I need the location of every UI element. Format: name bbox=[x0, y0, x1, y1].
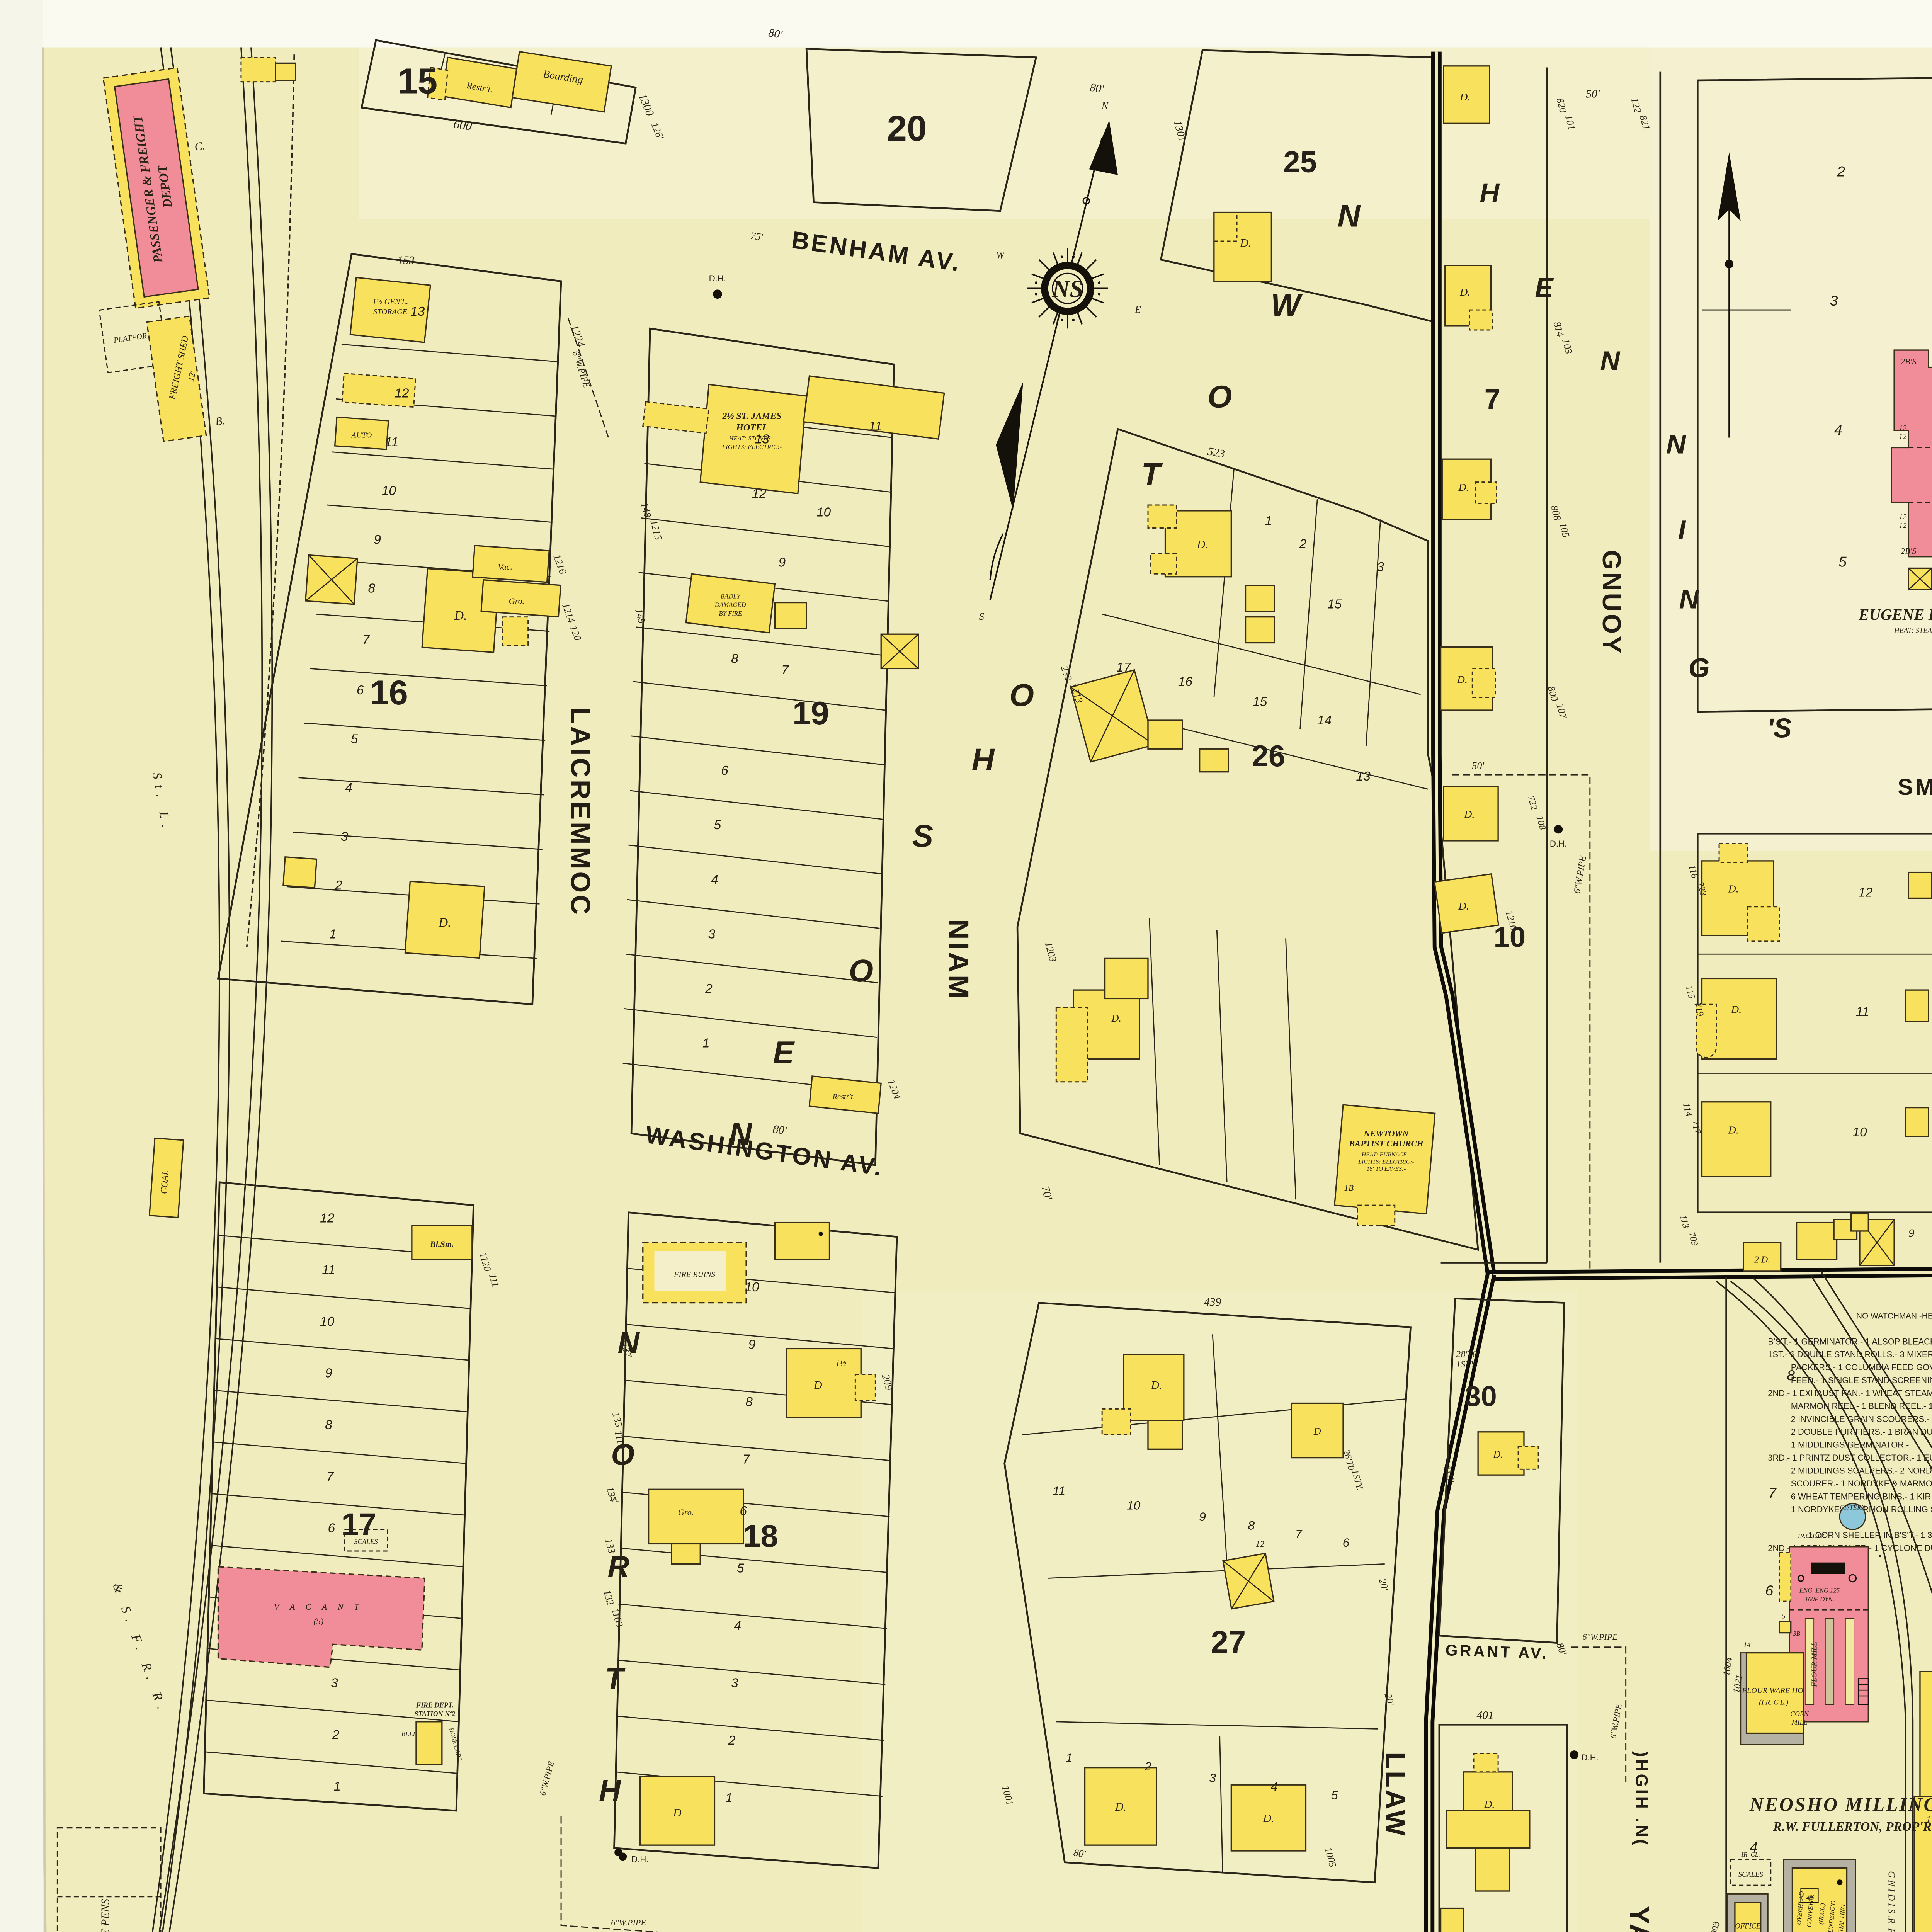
svg-text:T: T bbox=[1141, 457, 1163, 492]
svg-text:80': 80' bbox=[1073, 1847, 1087, 1860]
svg-text:16: 16 bbox=[370, 673, 408, 712]
svg-text:D.: D. bbox=[1484, 1799, 1495, 1811]
svg-text:2 MIDDLINGS SCALPERS.- 2 NORDY: 2 MIDDLINGS SCALPERS.- 2 NORDYKE SQUARE … bbox=[1791, 1466, 1932, 1475]
svg-text:17: 17 bbox=[1116, 660, 1131, 675]
svg-text:401: 401 bbox=[1476, 1709, 1494, 1721]
svg-text:10: 10 bbox=[382, 484, 396, 498]
svg-text:27: 27 bbox=[1211, 1625, 1246, 1660]
svg-text:6: 6 bbox=[1343, 1536, 1350, 1549]
svg-text:D: D bbox=[1313, 1426, 1321, 1437]
svg-text:C.: C. bbox=[194, 139, 206, 153]
svg-text:5: 5 bbox=[1782, 1612, 1786, 1620]
svg-text:D.H.: D.H. bbox=[709, 274, 726, 283]
svg-text:1: 1 bbox=[333, 1779, 341, 1794]
svg-text:FIRE DEPT.: FIRE DEPT. bbox=[416, 1701, 453, 1709]
svg-text:D.: D. bbox=[1111, 1013, 1121, 1024]
svg-text:2: 2 bbox=[705, 982, 713, 996]
svg-text:EUGENE FIELD SCHOOL: EUGENE FIELD SCHOOL bbox=[1858, 606, 1932, 623]
svg-text:COAL: COAL bbox=[159, 1170, 171, 1194]
svg-text:O: O bbox=[849, 953, 873, 988]
svg-text:OFFICE: OFFICE bbox=[1735, 1922, 1761, 1930]
svg-text:SCALES: SCALES bbox=[354, 1537, 378, 1545]
svg-text:2: 2 bbox=[335, 878, 342, 893]
svg-text:D.: D. bbox=[454, 609, 467, 623]
svg-text:7: 7 bbox=[1768, 1485, 1777, 1501]
svg-text:26: 26 bbox=[1252, 739, 1286, 773]
svg-text:12: 12 bbox=[1858, 886, 1873, 900]
svg-text:BELL: BELL bbox=[401, 1730, 417, 1738]
svg-text:S: S bbox=[979, 611, 984, 622]
svg-text:Gro.: Gro. bbox=[509, 596, 525, 606]
svg-text:6: 6 bbox=[328, 1521, 335, 1536]
svg-text:6: 6 bbox=[357, 683, 364, 697]
svg-text:1: 1 bbox=[1066, 1751, 1073, 1765]
svg-text:O: O bbox=[1009, 678, 1034, 713]
svg-text:CORN: CORN bbox=[1790, 1710, 1809, 1718]
svg-text:R.W. FULLERTON, PROP'R.: R.W. FULLERTON, PROP'R. bbox=[1773, 1820, 1932, 1834]
svg-text:18' TO EAVES:-: 18' TO EAVES:- bbox=[1367, 1166, 1406, 1172]
svg-text:HEAT: FURNACE:-: HEAT: FURNACE:- bbox=[1361, 1151, 1411, 1158]
svg-text:6: 6 bbox=[740, 1504, 747, 1518]
svg-text:D.: D. bbox=[1459, 91, 1470, 103]
svg-text:PACKERS.- 1 COLUMBIA FEED GOVE: PACKERS.- 1 COLUMBIA FEED GOVERNOR.- 1 D… bbox=[1791, 1362, 1932, 1372]
svg-text:1½ GEN'L.: 1½ GEN'L. bbox=[372, 298, 408, 306]
svg-text:80': 80' bbox=[768, 27, 784, 41]
svg-text:1: 1 bbox=[725, 1791, 733, 1805]
svg-text:D: D bbox=[813, 1379, 822, 1391]
svg-text:HOTEL: HOTEL bbox=[736, 422, 768, 433]
svg-text:YAWDAORB: YAWDAORB bbox=[1624, 1906, 1655, 1932]
svg-text:18: 18 bbox=[743, 1519, 778, 1554]
svg-text:I: I bbox=[1678, 515, 1686, 545]
svg-text:BAPTIST CHURCH: BAPTIST CHURCH bbox=[1349, 1139, 1423, 1148]
svg-text:D: D bbox=[673, 1807, 681, 1819]
svg-text:'S: 'S bbox=[1767, 713, 1792, 743]
svg-text:MARMON REEL.- 1 BLEND REEL.- 1: MARMON REEL.- 1 BLEND REEL.- 1 BARNARD &… bbox=[1791, 1401, 1932, 1411]
svg-text:5: 5 bbox=[714, 818, 721, 832]
svg-text:IR.CH.30': IR.CH.30' bbox=[1798, 1532, 1824, 1540]
svg-text:7: 7 bbox=[362, 633, 370, 647]
svg-text:2: 2 bbox=[332, 1728, 340, 1742]
svg-text:100P DYN.: 100P DYN. bbox=[1805, 1595, 1834, 1603]
svg-text:10: 10 bbox=[1852, 1125, 1867, 1139]
svg-text:D.: D. bbox=[1240, 237, 1251, 250]
svg-text:SMITH AV.: SMITH AV. bbox=[1898, 774, 1932, 800]
svg-text:15: 15 bbox=[398, 61, 437, 101]
svg-text:9: 9 bbox=[779, 556, 786, 570]
svg-text:D.: D. bbox=[1262, 1813, 1274, 1825]
svg-text:75': 75' bbox=[750, 230, 764, 243]
svg-text:D.: D. bbox=[1459, 286, 1470, 298]
svg-text:12: 12 bbox=[1899, 513, 1906, 521]
svg-text:G: G bbox=[1689, 653, 1710, 683]
svg-text:GRANT AV.: GRANT AV. bbox=[1445, 1641, 1549, 1662]
svg-text:D.H.: D.H. bbox=[1582, 1753, 1599, 1762]
svg-text:G N I D I S .R .R: G N I D I S .R .R bbox=[1886, 1871, 1896, 1932]
svg-text:SCALES: SCALES bbox=[1738, 1871, 1763, 1879]
svg-text:D.: D. bbox=[1728, 1124, 1739, 1136]
svg-text:3: 3 bbox=[731, 1676, 738, 1690]
svg-text:3: 3 bbox=[708, 927, 716, 941]
svg-text:D.H.: D.H. bbox=[1550, 839, 1567, 849]
svg-text:4: 4 bbox=[734, 1619, 742, 1633]
svg-text:600: 600 bbox=[452, 117, 473, 133]
svg-text:12: 12 bbox=[395, 386, 409, 401]
svg-text:GNUOY: GNUOY bbox=[1597, 550, 1626, 655]
svg-text:10: 10 bbox=[816, 505, 831, 520]
svg-text:2: 2 bbox=[1299, 537, 1307, 551]
svg-text:H: H bbox=[971, 742, 995, 777]
svg-text:8: 8 bbox=[325, 1418, 332, 1432]
svg-text:6: 6 bbox=[721, 764, 728, 778]
svg-text:N: N bbox=[1679, 583, 1700, 614]
svg-text:15: 15 bbox=[1253, 695, 1267, 709]
svg-text:CATTLE PENS: CATTLE PENS bbox=[99, 1899, 112, 1932]
svg-text:13: 13 bbox=[755, 432, 769, 446]
svg-text:12: 12 bbox=[1899, 424, 1906, 432]
svg-text:R: R bbox=[607, 1549, 629, 1583]
svg-text:5: 5 bbox=[1838, 554, 1847, 570]
svg-text:W: W bbox=[996, 249, 1005, 260]
svg-text:5: 5 bbox=[351, 732, 358, 746]
svg-text:NEWTOWN: NEWTOWN bbox=[1364, 1129, 1409, 1138]
svg-text:NS: NS bbox=[1052, 276, 1083, 303]
svg-text:D.: D. bbox=[1197, 538, 1208, 551]
svg-text:12': 12' bbox=[186, 369, 197, 382]
svg-text:V A C A N T: V A C A N T bbox=[274, 1602, 363, 1612]
svg-text:9: 9 bbox=[374, 532, 381, 547]
svg-text:Restr't.: Restr't. bbox=[832, 1092, 855, 1101]
svg-text:Bl.Sm.: Bl.Sm. bbox=[430, 1239, 454, 1249]
svg-text:AUTO: AUTO bbox=[350, 431, 372, 440]
svg-text:11: 11 bbox=[385, 435, 399, 449]
svg-text:N: N bbox=[1666, 429, 1687, 459]
svg-text:1 MIDDLINGS GERMINATOR.-: 1 MIDDLINGS GERMINATOR.- bbox=[1791, 1440, 1909, 1450]
svg-text:N: N bbox=[1600, 345, 1621, 376]
svg-text:Gro.: Gro. bbox=[678, 1507, 694, 1517]
svg-text:12: 12 bbox=[320, 1211, 335, 1226]
svg-text:11: 11 bbox=[869, 419, 882, 434]
svg-text:3RD.- 1 PRINTZ DUST COLLECTOR.: 3RD.- 1 PRINTZ DUST COLLECTOR.- 1 EUREKA… bbox=[1768, 1453, 1932, 1463]
svg-text:LLAW: LLAW bbox=[1380, 1752, 1411, 1838]
svg-text:8: 8 bbox=[1787, 1367, 1795, 1383]
svg-text:10: 10 bbox=[1127, 1498, 1141, 1512]
svg-text:4: 4 bbox=[1271, 1779, 1278, 1793]
svg-text:(I R. C L.): (I R. C L.) bbox=[1759, 1698, 1788, 1706]
svg-text:3: 3 bbox=[1209, 1771, 1216, 1785]
svg-text:N: N bbox=[729, 1117, 753, 1152]
svg-text:16: 16 bbox=[1178, 675, 1193, 689]
svg-text:1: 1 bbox=[1265, 514, 1272, 528]
svg-text:O: O bbox=[1207, 379, 1232, 415]
svg-text:13: 13 bbox=[410, 304, 425, 319]
svg-text:7: 7 bbox=[743, 1452, 750, 1466]
svg-text:12: 12 bbox=[752, 486, 767, 501]
svg-text:D.: D. bbox=[438, 916, 451, 930]
svg-text:1B: 1B bbox=[1344, 1183, 1354, 1193]
svg-text:17: 17 bbox=[341, 1507, 376, 1542]
svg-text:H: H bbox=[1480, 178, 1500, 208]
svg-text:2: 2 bbox=[1144, 1759, 1151, 1773]
svg-text:HEAT: STEAM:-LIGHTS: ELECTRIC:: HEAT: STEAM:-LIGHTS: ELECTRIC:- bbox=[1894, 627, 1932, 635]
svg-text:3B: 3B bbox=[1793, 1630, 1800, 1637]
svg-text:9: 9 bbox=[1199, 1510, 1206, 1524]
svg-text:8: 8 bbox=[1248, 1518, 1255, 1532]
svg-text:3: 3 bbox=[1830, 293, 1838, 309]
svg-text:8: 8 bbox=[745, 1395, 753, 1409]
svg-text:LAICREMMOC: LAICREMMOC bbox=[565, 707, 596, 917]
svg-text:NEOSHO MILLING CO.: NEOSHO MILLING CO. bbox=[1749, 1793, 1932, 1815]
svg-text:2B'S: 2B'S bbox=[1901, 357, 1917, 366]
svg-text:BADLY: BADLY bbox=[721, 592, 741, 600]
svg-text:15: 15 bbox=[1327, 597, 1342, 611]
svg-text:2½ ST. JAMES: 2½ ST. JAMES bbox=[722, 411, 781, 421]
svg-text:5: 5 bbox=[737, 1561, 744, 1576]
svg-text:D.: D. bbox=[1493, 1449, 1503, 1460]
svg-text:E: E bbox=[1134, 304, 1141, 315]
svg-text:1STY.: 1STY. bbox=[1456, 1359, 1477, 1370]
svg-text:NIAM: NIAM bbox=[942, 919, 975, 1001]
svg-text:13: 13 bbox=[1356, 769, 1371, 784]
svg-text:STATION Nº2: STATION Nº2 bbox=[414, 1710, 455, 1718]
svg-text:B.: B. bbox=[214, 415, 226, 428]
svg-text:439: 439 bbox=[1204, 1296, 1221, 1308]
svg-text:A.: A. bbox=[611, 1495, 619, 1504]
svg-text:NO WATCHMAN.-HEAT: STEAM.-LIGH: NO WATCHMAN.-HEAT: STEAM.-LIGHTS: ELECTR… bbox=[1856, 1311, 1932, 1320]
svg-text:1: 1 bbox=[702, 1036, 710, 1051]
svg-text:2ND.- 1 EXHAUST FAN.- 1 WHEAT: 2ND.- 1 EXHAUST FAN.- 1 WHEAT STEAMER.- … bbox=[1768, 1388, 1932, 1398]
svg-text:10: 10 bbox=[320, 1315, 335, 1329]
svg-text:BY FIRE: BY FIRE bbox=[719, 610, 742, 617]
svg-text:3: 3 bbox=[341, 830, 348, 844]
svg-text:ENG. ENG.125: ENG. ENG.125 bbox=[1799, 1587, 1840, 1594]
svg-text:11: 11 bbox=[1053, 1484, 1065, 1498]
svg-text:4: 4 bbox=[1834, 422, 1842, 438]
svg-text:CISTERN: CISTERN bbox=[1840, 1503, 1866, 1511]
svg-text:IR. CL.: IR. CL. bbox=[1741, 1851, 1760, 1858]
svg-text:D.: D. bbox=[1464, 809, 1475, 821]
svg-text:Vac.: Vac. bbox=[498, 562, 512, 571]
svg-text:8: 8 bbox=[368, 582, 376, 596]
svg-text:4: 4 bbox=[345, 781, 352, 795]
svg-text:2: 2 bbox=[728, 1733, 736, 1748]
svg-text:50': 50' bbox=[1472, 760, 1484, 771]
svg-text:)HGIH .N(: )HGIH .N( bbox=[1632, 1751, 1651, 1847]
svg-text:FLOUR WARE HO.: FLOUR WARE HO. bbox=[1742, 1687, 1805, 1695]
svg-text:80': 80' bbox=[772, 1123, 788, 1137]
svg-text:DAMAGED: DAMAGED bbox=[714, 601, 746, 609]
svg-text:50': 50' bbox=[1586, 88, 1600, 100]
svg-text:T: T bbox=[605, 1661, 626, 1695]
svg-text:1½: 1½ bbox=[835, 1358, 846, 1368]
svg-text:S: S bbox=[912, 818, 934, 854]
svg-text:14': 14' bbox=[1743, 1641, 1753, 1649]
svg-text:D.: D. bbox=[1115, 1801, 1126, 1813]
svg-text:20: 20 bbox=[887, 108, 927, 148]
svg-text:(5): (5) bbox=[313, 1616, 323, 1626]
svg-text:6"W.PIPE: 6"W.PIPE bbox=[611, 1918, 646, 1927]
svg-text:1ST.- 6 DOUBLE STAND ROLLS.-: 1ST.- 6 DOUBLE STAND ROLLS.- 3 MIXERS.- … bbox=[1768, 1350, 1932, 1359]
svg-text:6"W.PIPE: 6"W.PIPE bbox=[1582, 1632, 1617, 1642]
svg-text:5: 5 bbox=[1331, 1788, 1338, 1802]
svg-text:D.: D. bbox=[1728, 883, 1739, 895]
svg-text:14: 14 bbox=[1317, 713, 1332, 728]
svg-text:7: 7 bbox=[327, 1469, 334, 1484]
svg-text:25: 25 bbox=[1283, 145, 1317, 179]
svg-text:6: 6 bbox=[1765, 1582, 1774, 1599]
svg-text:FIRE RUINS: FIRE RUINS bbox=[673, 1270, 715, 1279]
svg-text:H: H bbox=[599, 1773, 621, 1807]
svg-text:3: 3 bbox=[331, 1676, 338, 1690]
svg-text:MILL: MILL bbox=[1791, 1718, 1808, 1726]
svg-text:11: 11 bbox=[1856, 1005, 1869, 1019]
svg-text:D.: D. bbox=[1458, 900, 1469, 912]
svg-text:9: 9 bbox=[325, 1366, 332, 1381]
svg-text:3: 3 bbox=[1377, 560, 1384, 574]
svg-text:80': 80' bbox=[1089, 81, 1105, 95]
svg-text:W: W bbox=[1271, 287, 1303, 323]
svg-text:11: 11 bbox=[322, 1263, 335, 1277]
svg-text:12: 12 bbox=[1256, 1539, 1264, 1549]
svg-text:2: 2 bbox=[1837, 163, 1845, 180]
svg-text:D.: D. bbox=[1731, 1004, 1742, 1016]
svg-text:LIGHTS: ELECTRIC:-: LIGHTS: ELECTRIC:- bbox=[1358, 1158, 1414, 1165]
svg-text:6 WHEAT TEMPERING BINS.- 1 KIR: 6 WHEAT TEMPERING BINS.- 1 KIRK AUTOMATI… bbox=[1791, 1492, 1932, 1501]
svg-text:7: 7 bbox=[1485, 383, 1500, 415]
svg-text:N: N bbox=[1101, 100, 1109, 111]
svg-text:7: 7 bbox=[1295, 1527, 1303, 1541]
svg-text:4: 4 bbox=[711, 872, 718, 887]
svg-text:153: 153 bbox=[398, 254, 415, 267]
svg-text:D.: D. bbox=[1457, 673, 1468, 685]
svg-text:2B'S: 2B'S bbox=[1901, 546, 1917, 556]
svg-text:12: 12 bbox=[1899, 521, 1906, 530]
svg-text:30: 30 bbox=[1465, 1380, 1497, 1412]
svg-text:9: 9 bbox=[1908, 1227, 1914, 1240]
svg-text:D.: D. bbox=[1458, 481, 1469, 493]
svg-text:▪: ▪ bbox=[1879, 1552, 1881, 1560]
svg-text:8: 8 bbox=[731, 651, 738, 666]
svg-text:9: 9 bbox=[748, 1337, 756, 1352]
svg-text:19: 19 bbox=[793, 695, 829, 732]
svg-text:E: E bbox=[773, 1035, 795, 1070]
svg-text:D.H.: D.H. bbox=[631, 1855, 649, 1864]
svg-text:FLOUR MILL: FLOUR MILL bbox=[1810, 1642, 1819, 1687]
svg-text:7: 7 bbox=[781, 663, 789, 677]
svg-text:10: 10 bbox=[745, 1280, 759, 1294]
svg-text:28'T0: 28'T0 bbox=[1456, 1349, 1477, 1360]
svg-text:LIGHTS: ELECTRIC:-: LIGHTS: ELECTRIC:- bbox=[722, 443, 782, 451]
svg-text:D.: D. bbox=[1151, 1379, 1162, 1391]
svg-text:2 D.: 2 D. bbox=[1754, 1255, 1770, 1265]
svg-text:12: 12 bbox=[1899, 432, 1906, 441]
svg-text:N: N bbox=[1337, 199, 1361, 234]
svg-text:1: 1 bbox=[329, 927, 337, 941]
svg-text:E: E bbox=[1535, 272, 1554, 303]
svg-text:STORAGE: STORAGE bbox=[373, 308, 408, 316]
